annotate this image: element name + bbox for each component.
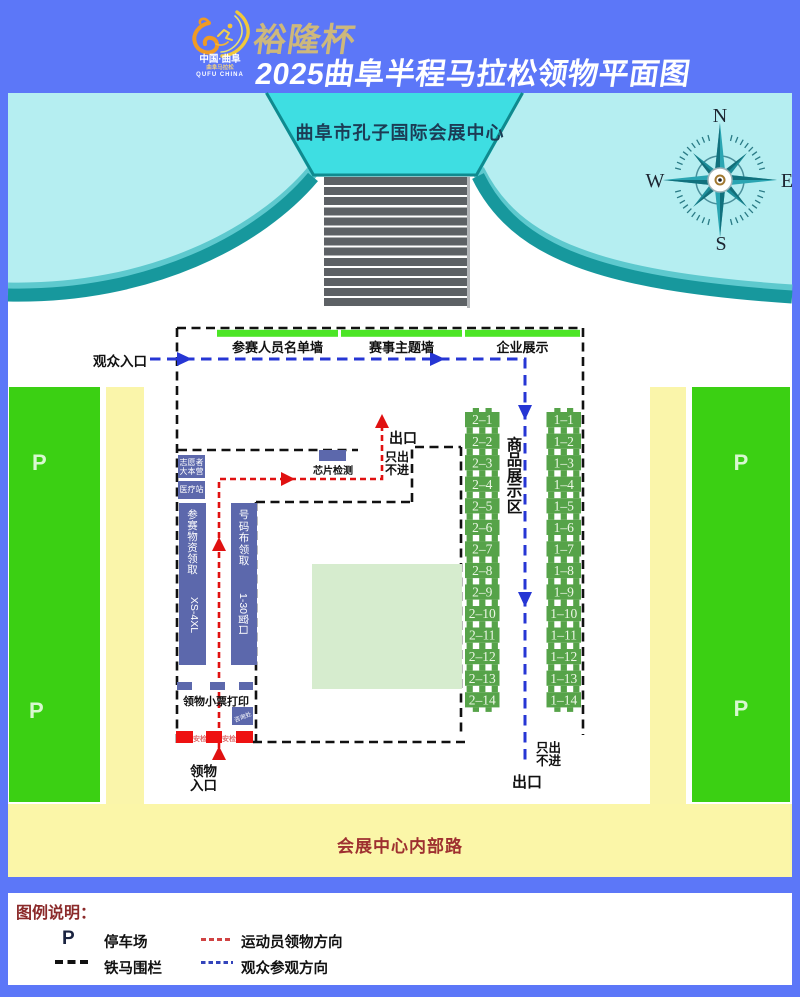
svg-text:2–3: 2–3 <box>472 455 493 470</box>
svg-text:2–9: 2–9 <box>472 585 493 600</box>
svg-text:1–10: 1–10 <box>550 606 577 621</box>
svg-text:1–5: 1–5 <box>554 498 575 513</box>
svg-text:2–11: 2–11 <box>469 628 496 643</box>
svg-text:1–4: 1–4 <box>554 477 575 492</box>
svg-text:S: S <box>715 233 726 255</box>
svg-text:1–8: 1–8 <box>554 563 575 578</box>
svg-text:2–1: 2–1 <box>472 412 492 427</box>
svg-text:E: E <box>781 170 793 192</box>
svg-text:2–8: 2–8 <box>472 563 493 578</box>
svg-text:1–13: 1–13 <box>550 671 577 686</box>
svg-text:N: N <box>713 105 727 127</box>
svg-text:2–4: 2–4 <box>472 477 493 492</box>
svg-text:1–1: 1–1 <box>554 412 574 427</box>
svg-text:1–12: 1–12 <box>550 649 577 664</box>
svg-text:2–14: 2–14 <box>469 692 496 707</box>
svg-text:1–9: 1–9 <box>554 585 575 600</box>
svg-text:2–5: 2–5 <box>472 498 493 513</box>
svg-text:1–11: 1–11 <box>551 628 578 643</box>
svg-text:2–7: 2–7 <box>472 542 493 557</box>
svg-text:1–2: 1–2 <box>554 434 574 449</box>
svg-text:1–6: 1–6 <box>554 520 575 535</box>
svg-text:2–13: 2–13 <box>469 671 496 686</box>
svg-text:2–12: 2–12 <box>469 649 496 664</box>
svg-text:2–10: 2–10 <box>469 606 496 621</box>
svg-text:W: W <box>646 170 665 192</box>
svg-text:2–6: 2–6 <box>472 520 493 535</box>
svg-text:1–7: 1–7 <box>554 542 575 557</box>
svg-text:1–14: 1–14 <box>550 692 577 707</box>
svg-text:2–2: 2–2 <box>472 434 492 449</box>
svg-text:1–3: 1–3 <box>554 455 575 470</box>
